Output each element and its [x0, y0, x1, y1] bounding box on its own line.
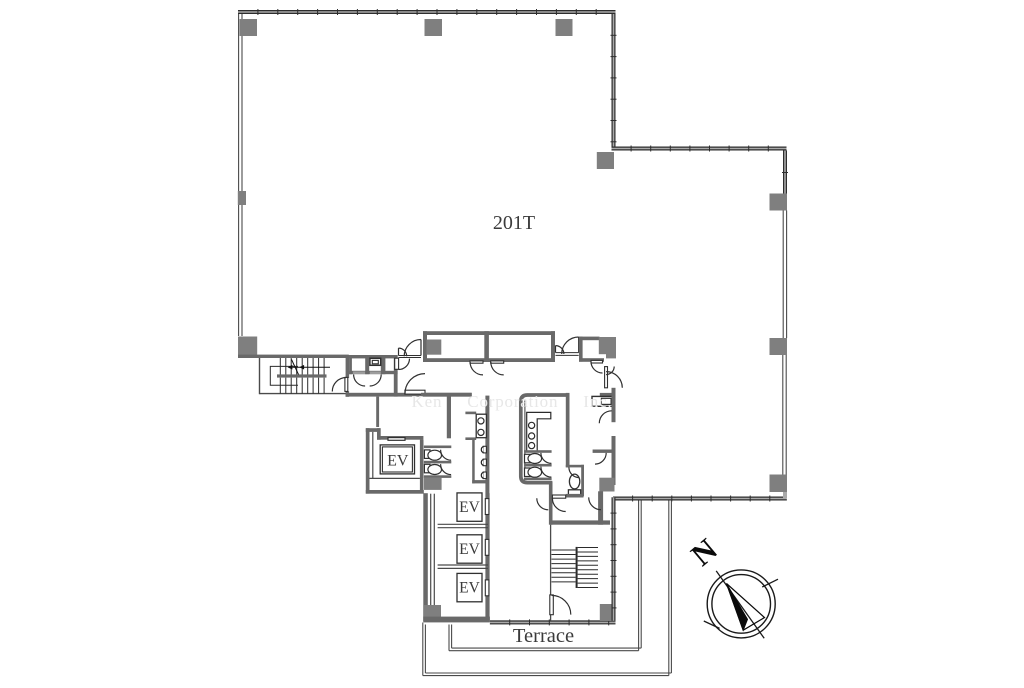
svg-text:EV: EV: [387, 452, 409, 469]
svg-text:Terrace: Terrace: [513, 625, 574, 647]
svg-text:201T: 201T: [493, 212, 535, 234]
svg-text:EV: EV: [459, 541, 480, 558]
svg-text:Ken Corporation Inc.: Ken Corporation Inc.: [412, 392, 613, 411]
svg-text:EV: EV: [459, 499, 480, 516]
svg-text:EV: EV: [459, 580, 480, 597]
